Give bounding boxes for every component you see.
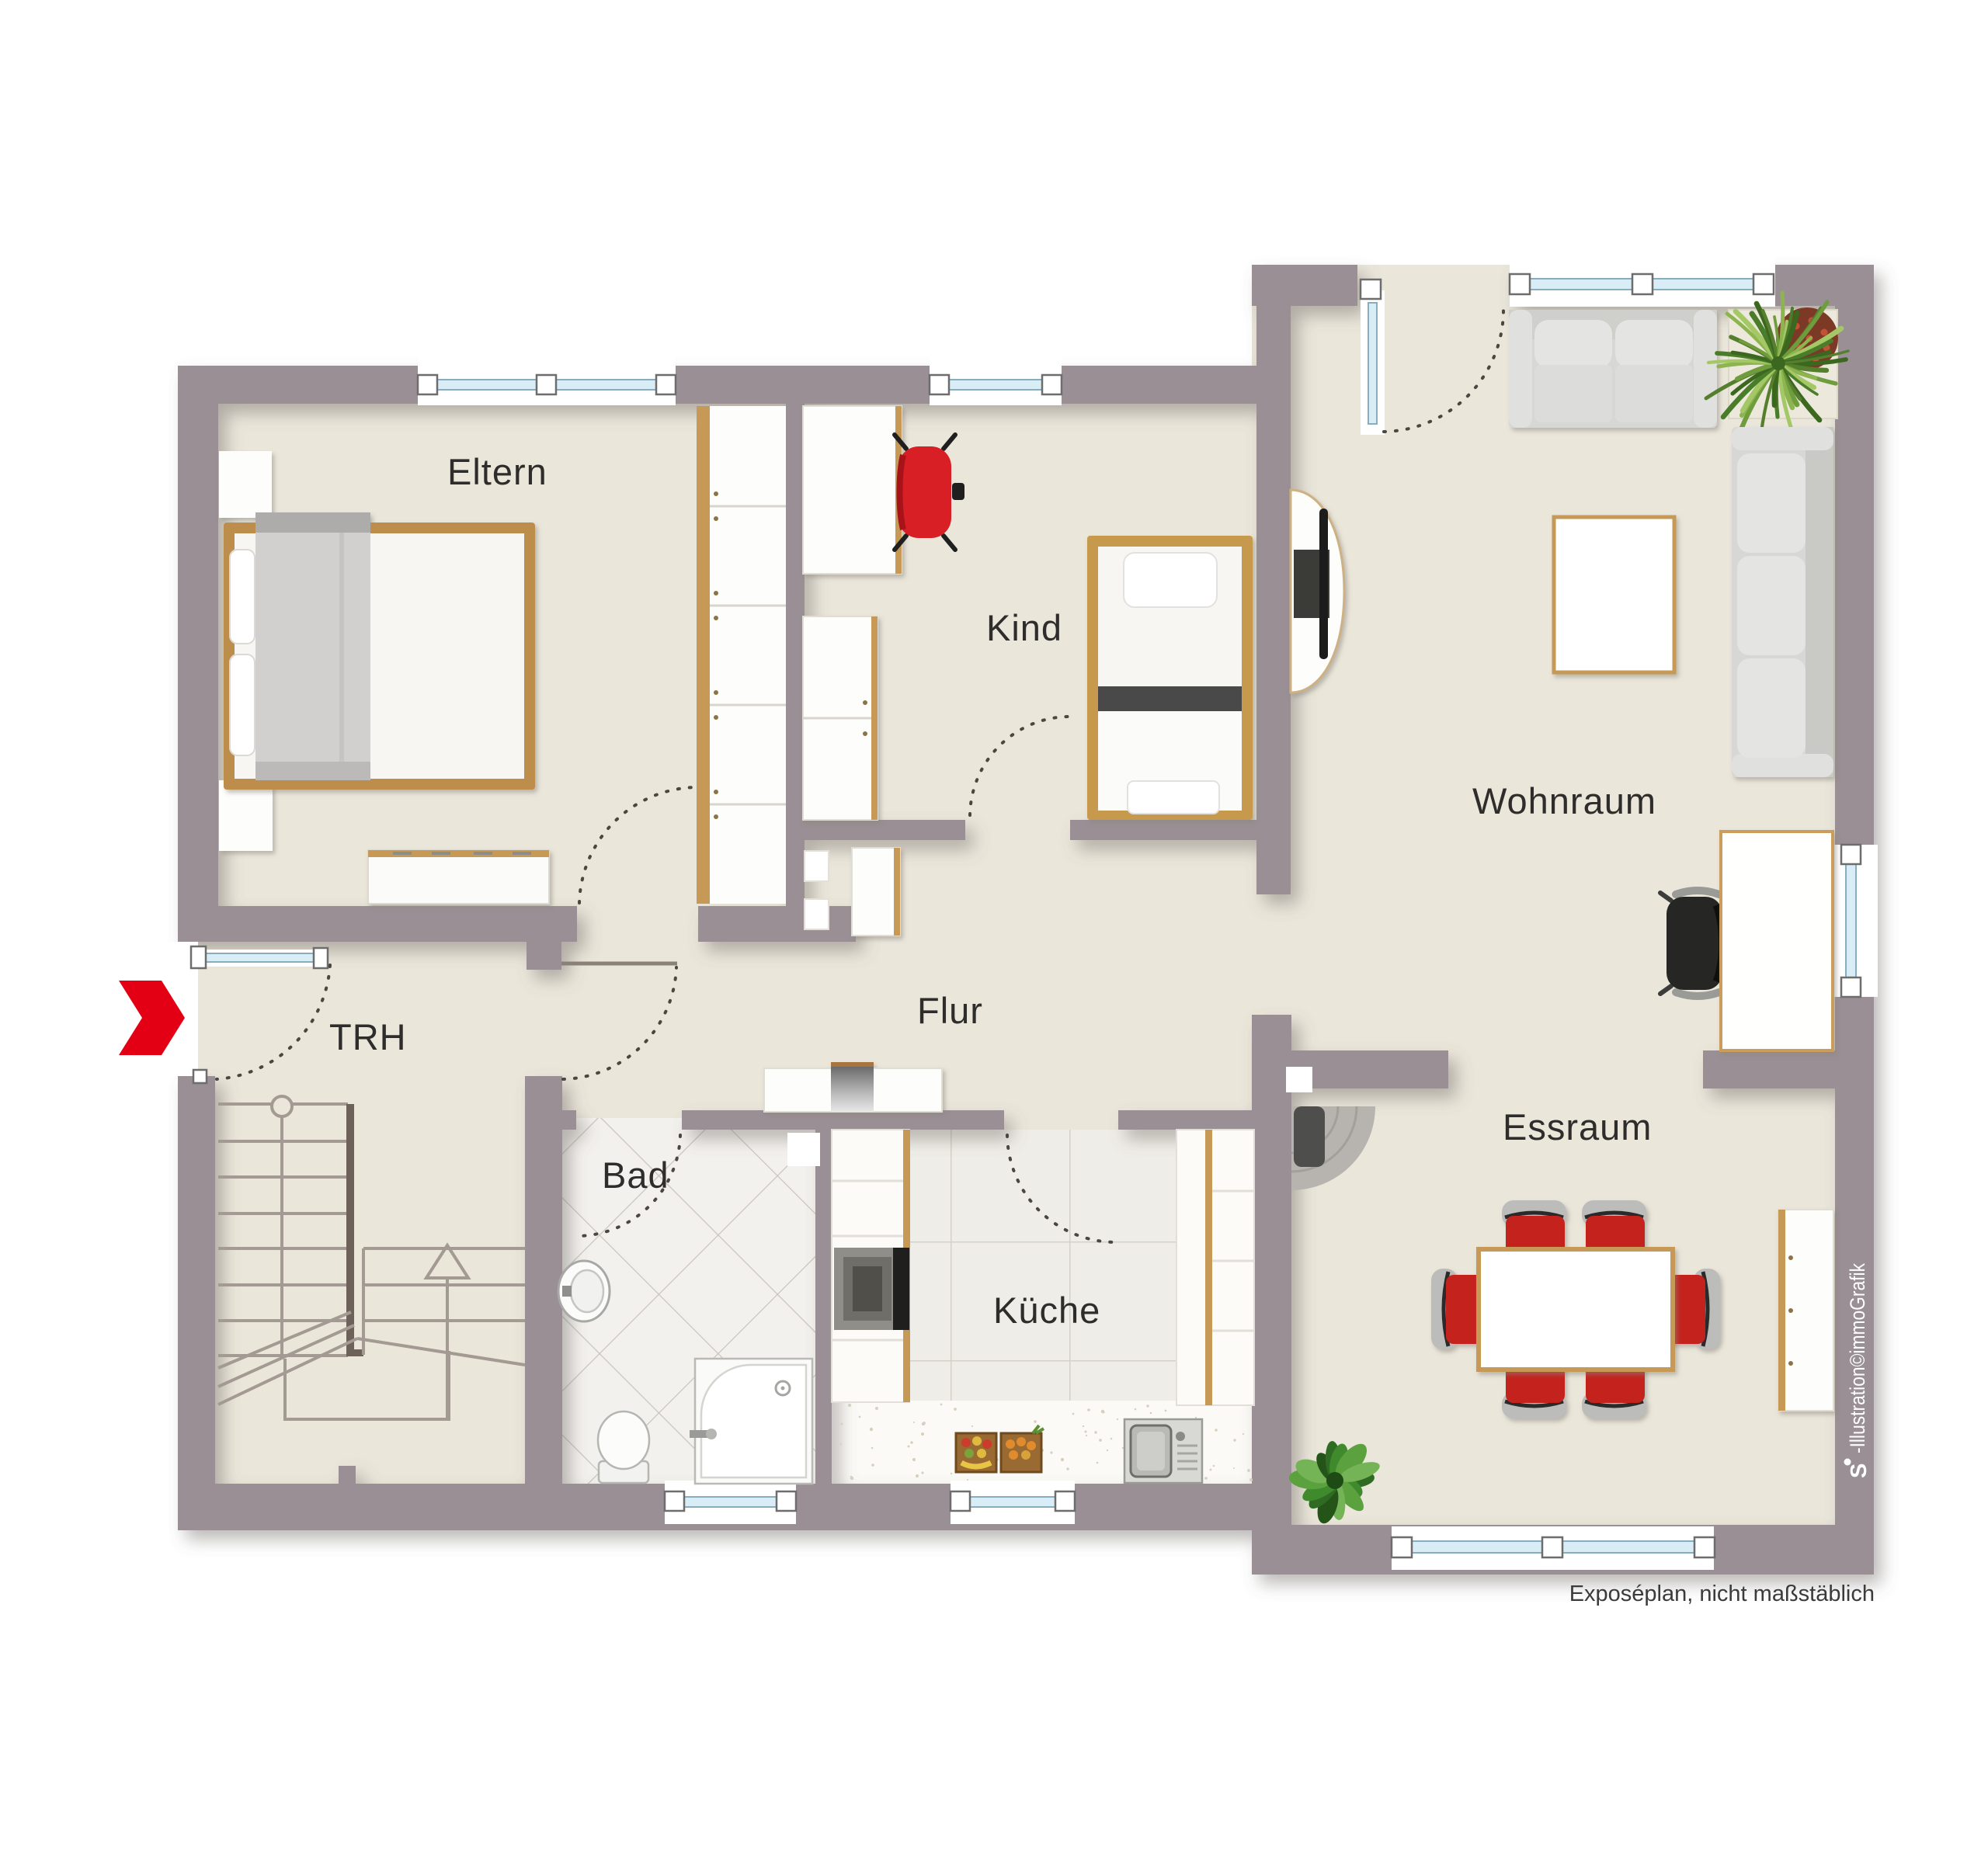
svg-text:Eltern: Eltern bbox=[447, 451, 547, 492]
svg-text:Küche: Küche bbox=[993, 1290, 1100, 1331]
svg-text:Kind: Kind bbox=[986, 607, 1062, 648]
svg-text:Wohnraum: Wohnraum bbox=[1472, 780, 1656, 821]
svg-text:TRH: TRH bbox=[329, 1016, 407, 1057]
svg-text:Flur: Flur bbox=[917, 990, 983, 1031]
svg-text:Essraum: Essraum bbox=[1503, 1106, 1652, 1148]
svg-text:Exposéplan, nicht maßstäblich: Exposéplan, nicht maßstäblich bbox=[1569, 1582, 1875, 1606]
svg-text:S: S bbox=[1847, 1463, 1872, 1478]
svg-text:-Illustration©immoGrafik: -Illustration©immoGrafik bbox=[1846, 1263, 1869, 1453]
svg-text:Bad: Bad bbox=[602, 1154, 669, 1196]
